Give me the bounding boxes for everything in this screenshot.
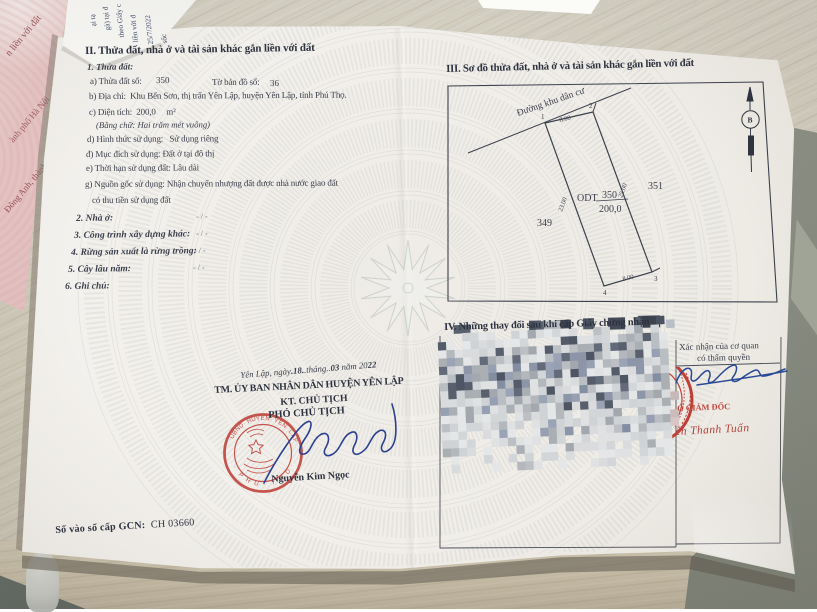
svg-text:H: H (244, 477, 251, 484)
svg-text:ODT: ODT (577, 193, 598, 204)
svg-text:1: 1 (541, 113, 545, 121)
svg-text:349: 349 (537, 218, 552, 229)
svg-text:351: 351 (648, 181, 663, 192)
svg-text:P: P (237, 472, 244, 479)
svg-text:3: 3 (654, 275, 658, 283)
svg-text:350: 350 (602, 190, 617, 201)
svg-text:4: 4 (603, 289, 607, 297)
svg-text:8.00: 8.00 (622, 274, 635, 283)
svg-text:·: · (289, 463, 295, 467)
svg-text:200,0: 200,0 (599, 204, 622, 215)
svg-text:2: 2 (589, 102, 593, 110)
svg-text:B: B (748, 116, 753, 125)
